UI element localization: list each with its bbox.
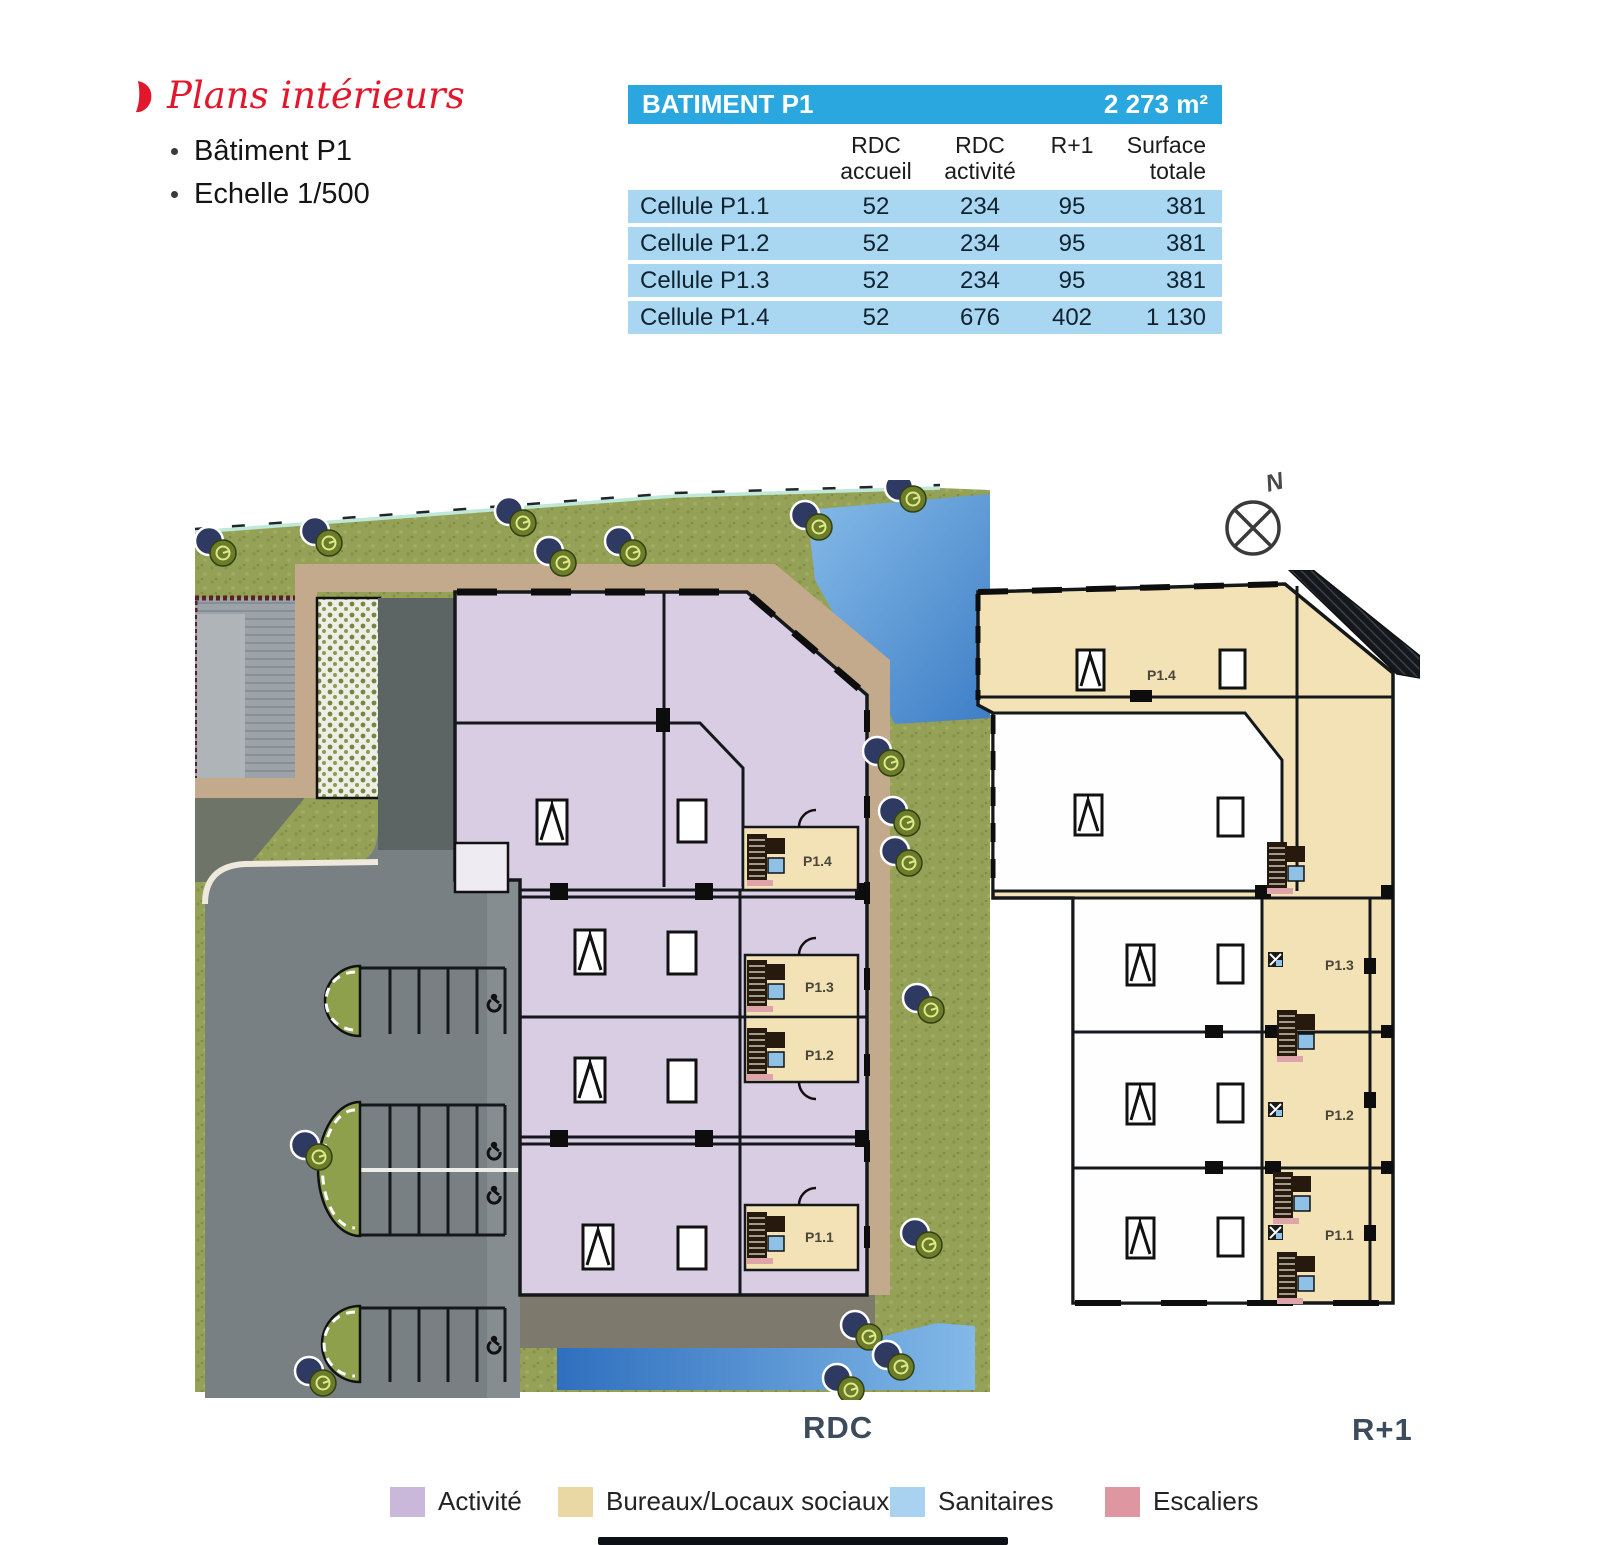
sectional-door-icon — [1127, 1084, 1154, 1124]
door-icon — [678, 800, 706, 842]
red-comma-icon — [135, 80, 155, 114]
cell-label-r1: P1.3 — [1325, 957, 1354, 973]
cell-label-rdc: P1.1 — [805, 1229, 834, 1245]
door-icon — [1218, 945, 1243, 983]
door-icon — [678, 1227, 706, 1269]
surface-table: BATIMENT P1 2 273 m² RDCaccueil RDCactiv… — [628, 85, 1222, 338]
table-row: Cellule P1.3 52 234 95 381 — [628, 264, 1222, 297]
bullet-label: Bâtiment P1 — [194, 135, 352, 168]
legend-item-escaliers: Escaliers — [1105, 1486, 1258, 1517]
table-row: Cellule P1.2 52 234 95 381 — [628, 227, 1222, 260]
door-icon — [668, 932, 696, 974]
legend-label: Escaliers — [1153, 1486, 1258, 1517]
page-title: Plans intérieurs — [167, 76, 465, 116]
bullet-label: Echelle 1/500 — [194, 178, 370, 211]
sectional-door-icon — [1075, 795, 1102, 835]
bullet-icon — [171, 148, 178, 155]
cell-label-rdc: P1.2 — [805, 1047, 834, 1063]
legend-item-activite: Activité — [390, 1486, 522, 1517]
cell-label-r1: P1.1 — [1325, 1227, 1354, 1243]
door-icon — [1218, 798, 1243, 836]
annex-room — [455, 843, 508, 892]
sectional-door-icon — [583, 1225, 613, 1269]
sectional-door-icon — [1127, 1218, 1154, 1258]
table-total-area: 2 273 m² — [1104, 89, 1208, 120]
legend-item-sanitaires: Sanitaires — [890, 1486, 1054, 1517]
compass-icon: N — [1222, 466, 1294, 566]
r1-floor-plan: P1.4 P1.3 P1.2 P1.1 — [965, 570, 1420, 1315]
legend-swatch — [890, 1487, 925, 1517]
legend: Activité Bureaux/Locaux sociaux Sanitair… — [0, 1482, 1600, 1522]
legend-swatch — [390, 1487, 425, 1517]
legend-label: Activité — [438, 1486, 522, 1517]
sanitaires-icon — [1268, 1102, 1283, 1117]
bullet-icon — [171, 191, 178, 198]
sectional-door-icon — [1077, 650, 1104, 690]
bullet-item: Echelle 1/500 — [171, 173, 465, 216]
compass-north-label: N — [1263, 467, 1287, 498]
table-header: BATIMENT P1 2 273 m² — [628, 85, 1222, 124]
table-title: BATIMENT P1 — [642, 89, 813, 120]
table-row: Cellule P1.1 52 234 95 381 — [628, 190, 1222, 223]
legend-label: Sanitaires — [938, 1486, 1054, 1517]
table-column-headers: RDCaccueil RDCactivité R+1 Surfacetotale — [628, 124, 1222, 190]
door-icon — [1220, 650, 1245, 688]
hedge-strip — [317, 598, 380, 798]
bullet-item: Bâtiment P1 — [171, 130, 465, 173]
door-icon — [668, 1060, 696, 1102]
cell-label-r1: P1.4 — [1147, 667, 1176, 683]
sectional-door-icon — [575, 930, 605, 974]
title-block: Plans intérieurs Bâtiment P1 Echelle 1/5… — [135, 76, 465, 216]
rdc-site-plan: P1.4 P1.3 P1.2 P1.1 — [195, 480, 990, 1400]
sectional-door-icon — [537, 800, 567, 844]
door-icon — [1218, 1084, 1243, 1122]
page: Plans intérieurs Bâtiment P1 Echelle 1/5… — [0, 0, 1600, 1545]
sectional-door-icon — [1127, 945, 1154, 985]
rdc-caption: RDC — [803, 1410, 873, 1446]
legend-swatch — [558, 1487, 593, 1517]
legend-label: Bureaux/Locaux sociaux — [606, 1486, 889, 1517]
sectional-door-icon — [575, 1058, 605, 1102]
door-icon — [1218, 1218, 1243, 1256]
sanitaires-icon — [1268, 952, 1283, 967]
page-edge-bar — [598, 1537, 1008, 1545]
sanitaires-icon — [1268, 1225, 1283, 1240]
cell-label-rdc: P1.4 — [803, 853, 832, 869]
legend-item-bureaux: Bureaux/Locaux sociaux — [558, 1486, 889, 1517]
cell-label-rdc: P1.3 — [805, 979, 834, 995]
bullet-list: Bâtiment P1 Echelle 1/500 — [171, 130, 465, 216]
cell-label-r1: P1.2 — [1325, 1107, 1354, 1123]
legend-swatch — [1105, 1487, 1140, 1517]
r1-caption: R+1 — [1352, 1412, 1413, 1448]
table-row: Cellule P1.4 52 676 402 1 130 — [628, 301, 1222, 334]
